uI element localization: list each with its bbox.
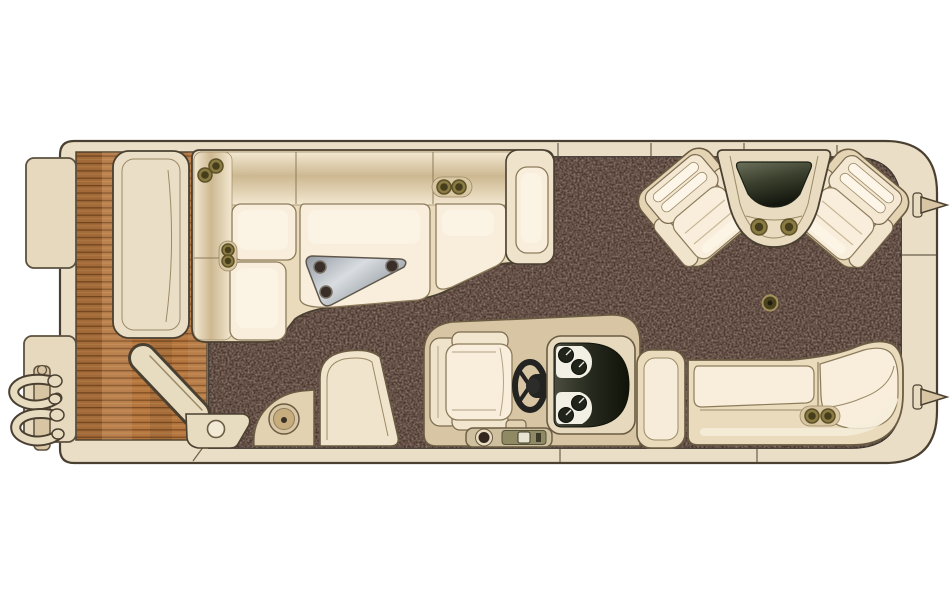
bow-gate-open xyxy=(113,151,189,338)
floor-plan-canvas xyxy=(0,0,950,615)
instrument-panel xyxy=(547,336,635,434)
aft-cup-holders xyxy=(800,406,840,426)
floor-plan-illustration xyxy=(0,0,950,615)
table-floor-mount xyxy=(763,296,778,311)
throttle-panel xyxy=(466,428,552,447)
